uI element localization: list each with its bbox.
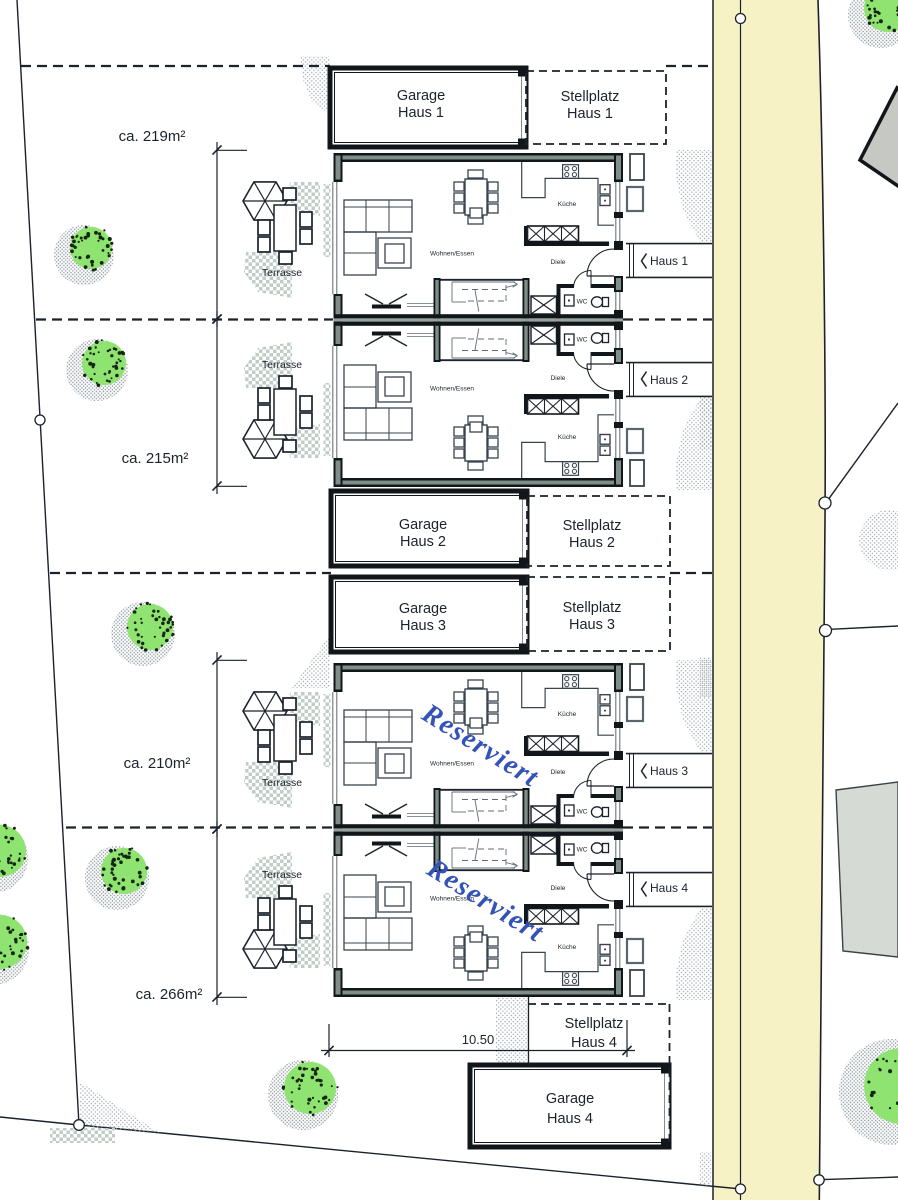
svg-text:Garage: Garage bbox=[399, 517, 447, 533]
svg-text:Terrasse: Terrasse bbox=[262, 777, 302, 789]
svg-text:Diele: Diele bbox=[551, 885, 566, 892]
svg-text:Haus 2: Haus 2 bbox=[569, 535, 615, 551]
svg-text:Terrasse: Terrasse bbox=[262, 267, 302, 279]
svg-text:Garage: Garage bbox=[399, 601, 447, 617]
svg-text:Wohnen/Essen: Wohnen/Essen bbox=[430, 251, 474, 258]
svg-text:10.50: 10.50 bbox=[462, 1032, 495, 1047]
svg-text:ca. 219m²: ca. 219m² bbox=[119, 128, 186, 145]
svg-text:WC: WC bbox=[577, 337, 588, 344]
svg-text:Haus 2: Haus 2 bbox=[650, 373, 688, 387]
svg-text:Haus 3: Haus 3 bbox=[569, 617, 615, 633]
svg-text:Küche: Küche bbox=[558, 434, 577, 441]
svg-text:ca. 266m²: ca. 266m² bbox=[136, 986, 203, 1003]
svg-text:Haus 4: Haus 4 bbox=[547, 1111, 593, 1127]
svg-text:Wohnen/Essen: Wohnen/Essen bbox=[430, 386, 474, 393]
svg-text:WC: WC bbox=[577, 299, 588, 306]
svg-text:WC: WC bbox=[577, 809, 588, 816]
svg-text:Diele: Diele bbox=[551, 769, 566, 776]
svg-text:Küche: Küche bbox=[558, 711, 577, 718]
svg-text:Garage: Garage bbox=[397, 88, 445, 104]
svg-text:Stellplatz: Stellplatz bbox=[565, 1016, 624, 1032]
svg-text:Haus 1: Haus 1 bbox=[650, 254, 688, 268]
svg-text:ca. 215m²: ca. 215m² bbox=[122, 450, 189, 467]
svg-text:Küche: Küche bbox=[558, 944, 577, 951]
svg-text:Haus 4: Haus 4 bbox=[571, 1035, 617, 1051]
svg-text:Stellplatz: Stellplatz bbox=[563, 518, 622, 534]
svg-text:Stellplatz: Stellplatz bbox=[561, 89, 620, 105]
svg-text:Haus 1: Haus 1 bbox=[567, 106, 613, 122]
svg-text:Haus 4: Haus 4 bbox=[650, 881, 688, 895]
svg-text:Haus 3: Haus 3 bbox=[650, 764, 688, 778]
svg-text:Haus 3: Haus 3 bbox=[400, 618, 446, 634]
svg-text:Terrasse: Terrasse bbox=[262, 869, 302, 881]
svg-text:Diele: Diele bbox=[551, 259, 566, 266]
svg-text:Stellplatz: Stellplatz bbox=[563, 600, 622, 616]
svg-text:WC: WC bbox=[577, 847, 588, 854]
svg-text:Küche: Küche bbox=[558, 201, 577, 208]
svg-text:Haus 2: Haus 2 bbox=[400, 534, 446, 550]
svg-text:Garage: Garage bbox=[546, 1091, 594, 1107]
svg-text:Haus 1: Haus 1 bbox=[398, 105, 444, 121]
svg-text:ca. 210m²: ca. 210m² bbox=[124, 755, 191, 772]
svg-text:Terrasse: Terrasse bbox=[262, 359, 302, 371]
svg-text:Diele: Diele bbox=[551, 375, 566, 382]
svg-text:Wohnen/Essen: Wohnen/Essen bbox=[430, 761, 474, 768]
